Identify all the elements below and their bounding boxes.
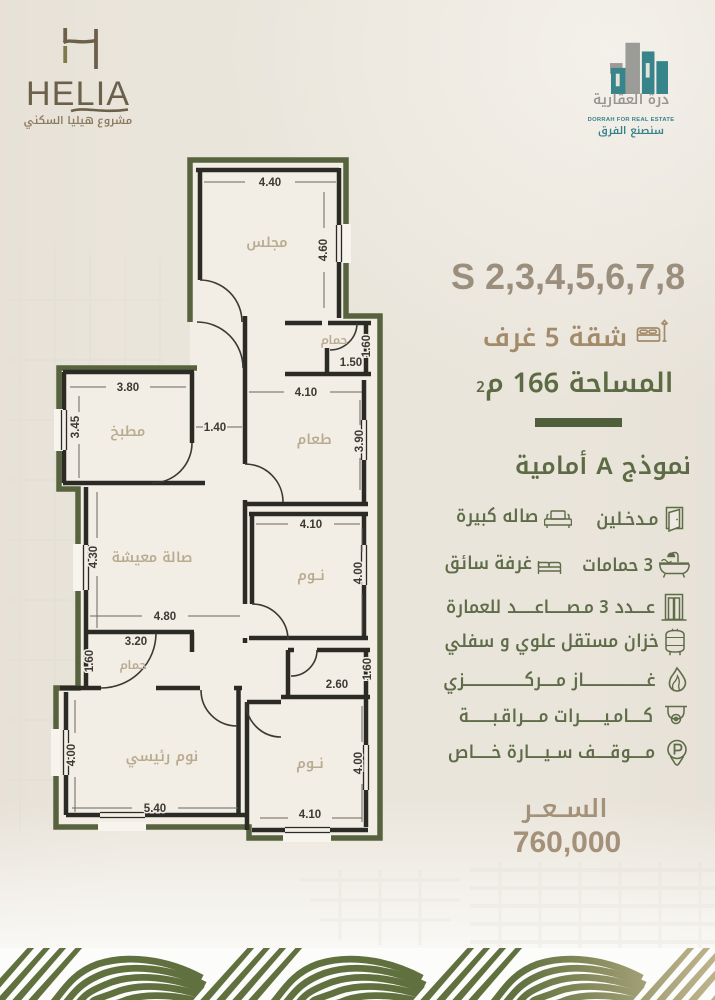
svg-text:حمام: حمام [320,330,347,352]
svg-text:نــوم: نــوم [296,750,324,777]
svg-text:3.20: 3.20 [125,636,147,648]
svg-text:1.60: 1.60 [361,335,373,357]
svg-text:5.40: 5.40 [144,803,166,815]
svg-text:نــوم: نــوم [297,562,325,589]
svg-text:3.45: 3.45 [70,415,82,438]
svg-text:مجلس: مجلس [246,229,288,256]
svg-text:صالة معيشة: صالة معيشة [112,544,193,571]
svg-text:4.10: 4.10 [300,519,322,531]
svg-text:4.00: 4.00 [353,752,365,774]
svg-text:4.10: 4.10 [295,387,317,399]
svg-text:4.80: 4.80 [154,611,176,623]
svg-text:نوم رئيسي: نوم رئيسي [126,743,199,770]
svg-text:2.60: 2.60 [326,679,348,691]
svg-text:4.60: 4.60 [318,239,330,261]
svg-text:4.10: 4.10 [299,809,321,821]
svg-text:حمام: حمام [119,655,146,677]
svg-text:3.80: 3.80 [117,382,139,394]
svg-text:4.40: 4.40 [259,177,281,189]
svg-text:4.30: 4.30 [88,546,100,568]
svg-text:4.00: 4.00 [66,744,78,766]
svg-text:مطبخ: مطبخ [110,418,145,445]
svg-text:1.40: 1.40 [204,422,226,434]
svg-text:1.60: 1.60 [84,650,96,672]
svg-text:1.50: 1.50 [340,357,362,369]
svg-text:طعام: طعام [297,426,332,453]
svg-text:3.90: 3.90 [354,430,366,452]
svg-text:4.00: 4.00 [353,562,365,584]
svg-text:1.60: 1.60 [362,658,374,680]
